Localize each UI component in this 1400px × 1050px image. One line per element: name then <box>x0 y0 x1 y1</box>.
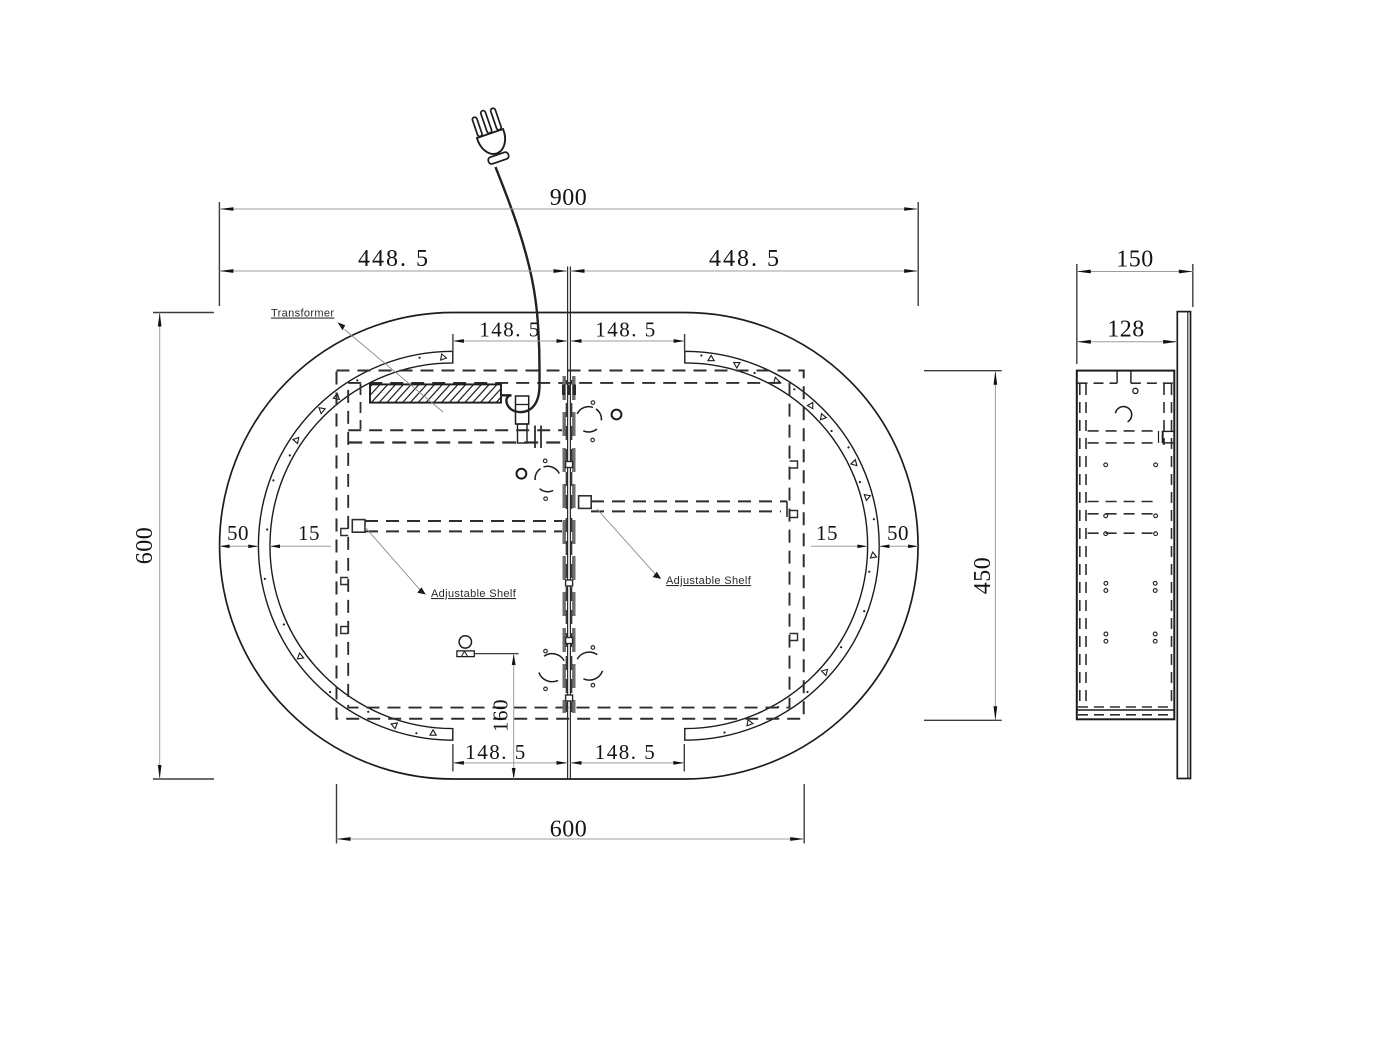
svg-text:Adjustable Shelf: Adjustable Shelf <box>666 575 752 587</box>
svg-text:128: 128 <box>1107 317 1145 343</box>
svg-text:150: 150 <box>1116 247 1154 273</box>
svg-text:600: 600 <box>550 817 588 843</box>
svg-text:160: 160 <box>489 699 513 732</box>
svg-text:900: 900 <box>550 185 588 211</box>
svg-text:50: 50 <box>887 521 909 545</box>
svg-text:148. 5: 148. 5 <box>465 740 527 764</box>
svg-text:50: 50 <box>227 521 249 545</box>
svg-text:148. 5: 148. 5 <box>479 318 541 342</box>
svg-text:450: 450 <box>970 557 996 595</box>
svg-text:Adjustable Shelf: Adjustable Shelf <box>431 588 517 600</box>
svg-text:15: 15 <box>816 521 838 545</box>
svg-text:448. 5: 448. 5 <box>358 246 430 272</box>
svg-text:148. 5: 148. 5 <box>595 740 657 764</box>
svg-text:148. 5: 148. 5 <box>595 318 657 342</box>
svg-text:448. 5: 448. 5 <box>709 246 781 272</box>
svg-text:Transformer: Transformer <box>271 308 334 320</box>
svg-text:600: 600 <box>132 527 158 565</box>
svg-text:15: 15 <box>298 521 320 545</box>
